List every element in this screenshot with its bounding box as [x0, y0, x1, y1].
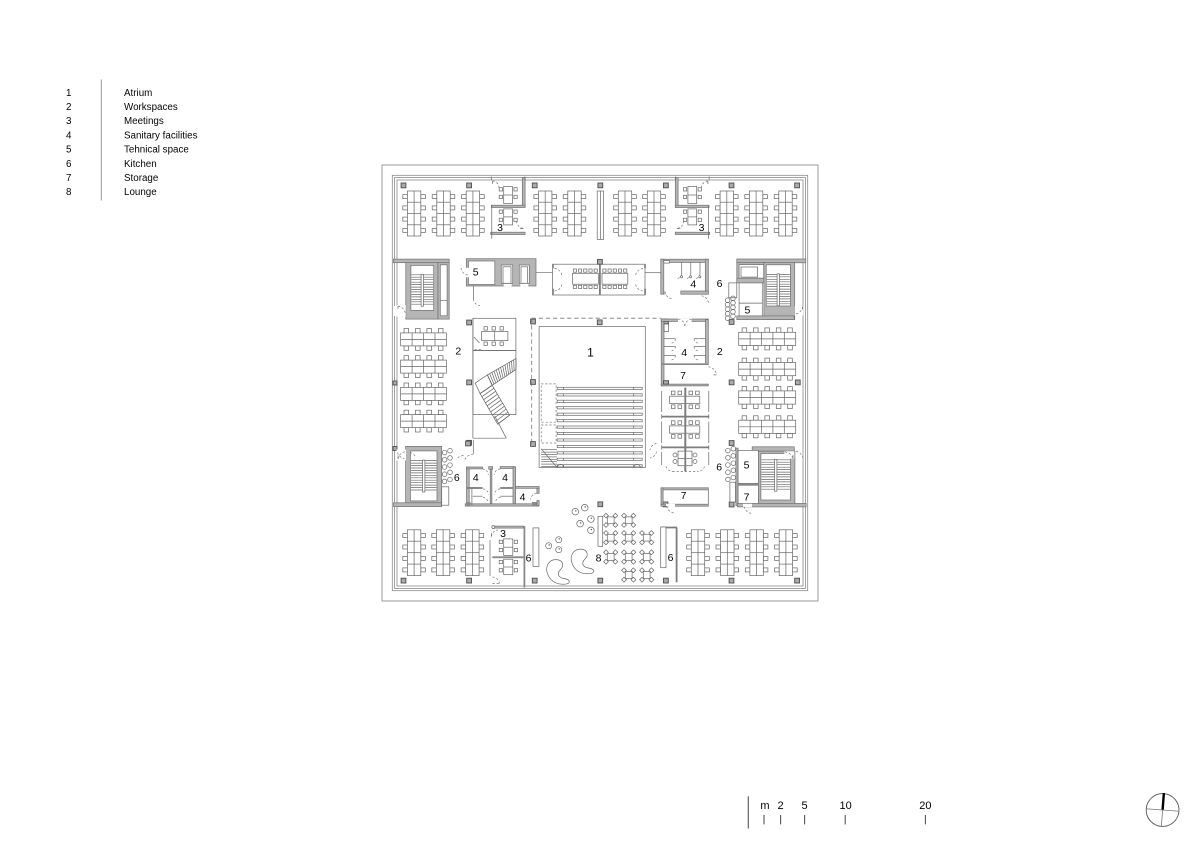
svg-text:6: 6 — [526, 553, 532, 565]
svg-text:5: 5 — [744, 305, 750, 317]
svg-text:8: 8 — [66, 187, 72, 198]
svg-text:6: 6 — [668, 552, 674, 564]
svg-text:10: 10 — [839, 800, 851, 812]
svg-text:2: 2 — [717, 346, 723, 358]
svg-text:Atrium: Atrium — [124, 88, 152, 99]
svg-text:6: 6 — [66, 159, 72, 170]
svg-text:Kitchen: Kitchen — [124, 159, 157, 170]
svg-text:5: 5 — [473, 267, 479, 279]
svg-text:4: 4 — [502, 472, 508, 484]
svg-text:4: 4 — [681, 347, 687, 359]
svg-text:4: 4 — [690, 279, 696, 291]
svg-text:2: 2 — [778, 800, 784, 812]
svg-text:3: 3 — [497, 222, 503, 234]
svg-text:4: 4 — [473, 472, 479, 484]
svg-text:Workspaces: Workspaces — [124, 102, 178, 113]
svg-text:Tehnical space: Tehnical space — [124, 145, 189, 156]
svg-text:20: 20 — [919, 800, 931, 812]
svg-text:Storage: Storage — [124, 173, 159, 184]
svg-text:7: 7 — [744, 492, 750, 504]
svg-text:4: 4 — [520, 492, 526, 504]
svg-text:6: 6 — [716, 462, 722, 474]
svg-text:2: 2 — [66, 102, 71, 113]
svg-text:Sanitary facilities: Sanitary facilities — [124, 130, 198, 141]
svg-text:m: m — [760, 800, 769, 812]
svg-text:3: 3 — [500, 528, 506, 540]
svg-text:5: 5 — [744, 460, 750, 472]
svg-text:6: 6 — [717, 278, 723, 290]
svg-text:3: 3 — [66, 116, 72, 127]
svg-text:1: 1 — [587, 346, 594, 360]
svg-text:5: 5 — [802, 800, 808, 812]
svg-text:Lounge: Lounge — [124, 187, 157, 198]
svg-text:7: 7 — [681, 490, 687, 502]
svg-text:6: 6 — [454, 472, 460, 484]
svg-text:7: 7 — [680, 370, 686, 382]
svg-text:2: 2 — [455, 346, 461, 358]
svg-text:3: 3 — [699, 222, 705, 234]
svg-text:8: 8 — [596, 553, 602, 565]
svg-text:Meetings: Meetings — [124, 116, 164, 127]
svg-text:5: 5 — [66, 145, 72, 156]
svg-text:4: 4 — [66, 130, 72, 141]
svg-text:1: 1 — [66, 88, 71, 99]
svg-text:7: 7 — [66, 173, 71, 184]
